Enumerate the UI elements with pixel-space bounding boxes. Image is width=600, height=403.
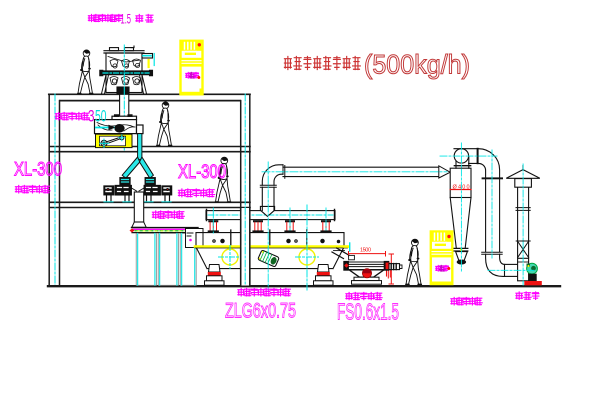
svg-text:XL-300: XL-300 xyxy=(14,159,62,181)
svg-text:FS0.6x1.5: FS0.6x1.5 xyxy=(337,299,399,325)
svg-text:1500: 1500 xyxy=(360,247,371,253)
svg-text:3: 3 xyxy=(88,107,95,126)
svg-text:(500kg/h): (500kg/h) xyxy=(364,50,470,80)
svg-text:ZLG6x0.75: ZLG6x0.75 xyxy=(225,299,296,323)
svg-text:Ø400: Ø400 xyxy=(453,185,470,191)
svg-text:50: 50 xyxy=(95,107,107,126)
svg-text:1.5: 1.5 xyxy=(121,12,132,27)
svg-text:XL-300: XL-300 xyxy=(178,161,226,183)
